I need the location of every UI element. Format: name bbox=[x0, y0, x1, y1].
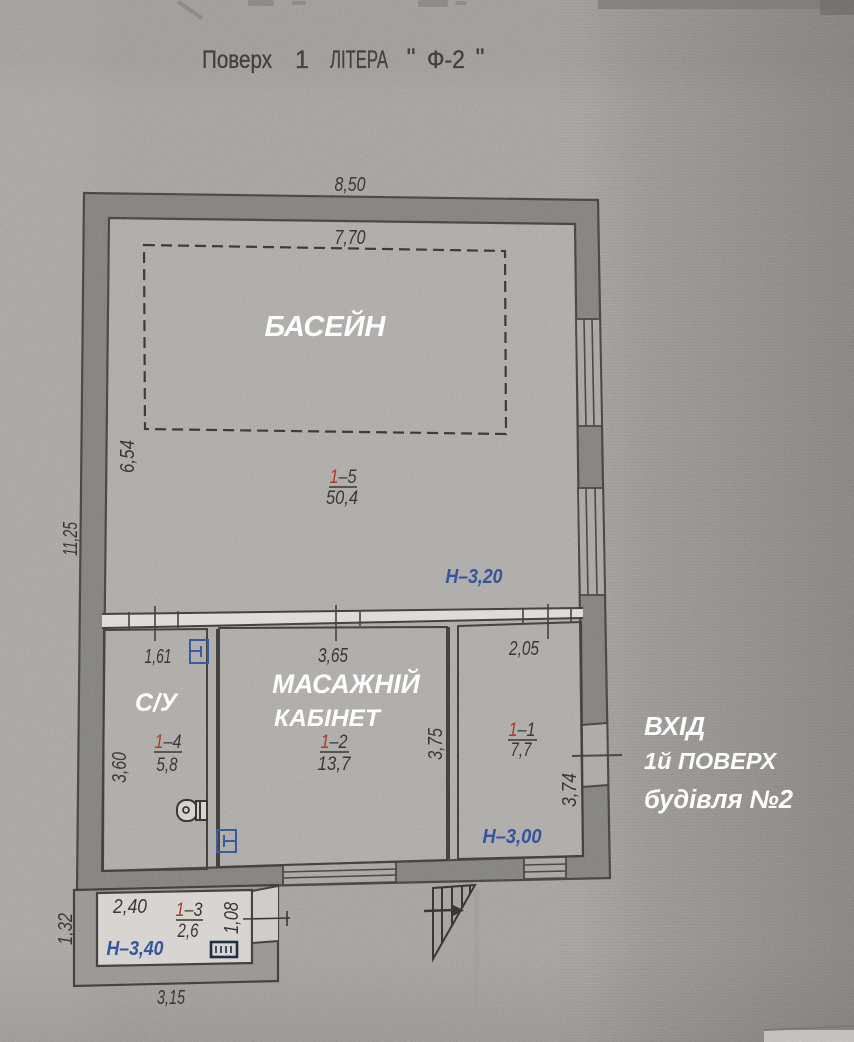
svg-text:Н–3,00: Н–3,00 bbox=[483, 826, 542, 848]
svg-text:11,25: 11,25 bbox=[60, 521, 82, 556]
svg-text:3,75: 3,75 bbox=[425, 727, 447, 760]
svg-text:2,40: 2,40 bbox=[112, 896, 147, 918]
svg-text:3,60: 3,60 bbox=[109, 752, 131, 783]
svg-text:1,08: 1,08 bbox=[221, 902, 243, 934]
svg-text:С/У: С/У bbox=[135, 689, 179, 717]
svg-text:3,65: 3,65 bbox=[318, 645, 349, 667]
svg-text:50,4: 50,4 bbox=[326, 488, 358, 509]
svg-text:13,7: 13,7 bbox=[318, 754, 352, 775]
svg-text:2,05: 2,05 bbox=[508, 638, 539, 660]
svg-text:1,32: 1,32 bbox=[55, 913, 77, 945]
svg-text:1–2: 1–2 bbox=[321, 732, 348, 753]
svg-text:7,7: 7,7 bbox=[511, 740, 533, 761]
svg-text:ВХІД: ВХІД bbox=[644, 711, 705, 741]
svg-text:МАСАЖНІЙ: МАСАЖНІЙ bbox=[272, 669, 421, 699]
svg-text:7,70: 7,70 bbox=[335, 227, 366, 249]
svg-text:1–1: 1–1 bbox=[509, 720, 536, 741]
svg-text:1–3: 1–3 bbox=[176, 900, 203, 921]
svg-text:8,50: 8,50 bbox=[335, 174, 366, 196]
svg-text:КАБІНЕТ: КАБІНЕТ bbox=[274, 705, 382, 732]
svg-text:1–5: 1–5 bbox=[330, 467, 357, 488]
svg-text:Н–3,40: Н–3,40 bbox=[107, 938, 164, 960]
svg-text:1,61: 1,61 bbox=[145, 646, 172, 668]
svg-text:1й ПОВЕРХ: 1й ПОВЕРХ bbox=[644, 748, 778, 774]
svg-text:6,54: 6,54 bbox=[117, 440, 139, 473]
svg-text:будівля №2: будівля №2 bbox=[644, 786, 793, 814]
svg-text:5,8: 5,8 bbox=[157, 755, 178, 776]
svg-text:2,6: 2,6 bbox=[177, 921, 199, 942]
svg-text:3,15: 3,15 bbox=[157, 987, 186, 1009]
svg-text:1–4: 1–4 bbox=[155, 732, 182, 753]
svg-text:Н–3,20: Н–3,20 bbox=[446, 566, 503, 588]
svg-text:3,74: 3,74 bbox=[559, 773, 581, 807]
svg-text:БАСЕЙН: БАСЕЙН bbox=[264, 308, 386, 343]
